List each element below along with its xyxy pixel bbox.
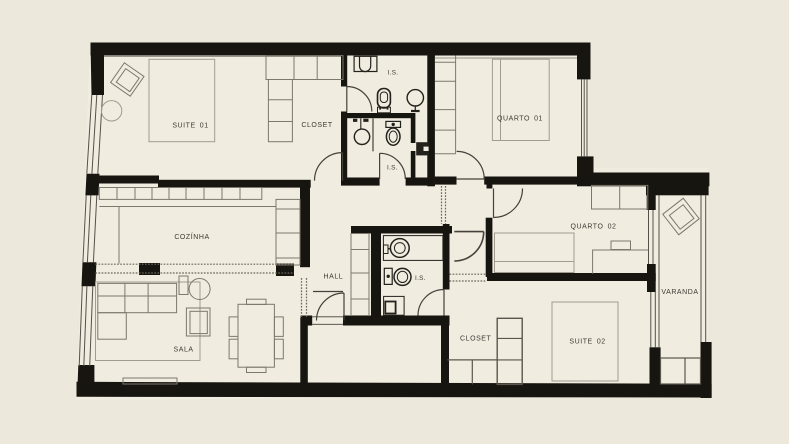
svg-text:I.S.: I.S. (415, 275, 426, 282)
svg-text:COZÍNHA: COZÍNHA (174, 232, 209, 241)
svg-text:I.S.: I.S. (388, 70, 399, 77)
svg-text:VARANDA: VARANDA (661, 289, 698, 296)
svg-text:I.S.: I.S. (387, 165, 398, 172)
svg-text:SUITE 01: SUITE 01 (172, 122, 208, 129)
svg-text:CLOSET: CLOSET (460, 336, 491, 343)
svg-text:SUITE 02: SUITE 02 (569, 338, 605, 345)
svg-text:SALA: SALA (174, 347, 194, 354)
svg-text:HALL: HALL (324, 274, 344, 281)
svg-text:QUARTO 01: QUARTO 01 (497, 116, 543, 123)
svg-text:CLOSET: CLOSET (301, 122, 332, 129)
svg-text:QUARTO 02: QUARTO 02 (571, 224, 617, 231)
